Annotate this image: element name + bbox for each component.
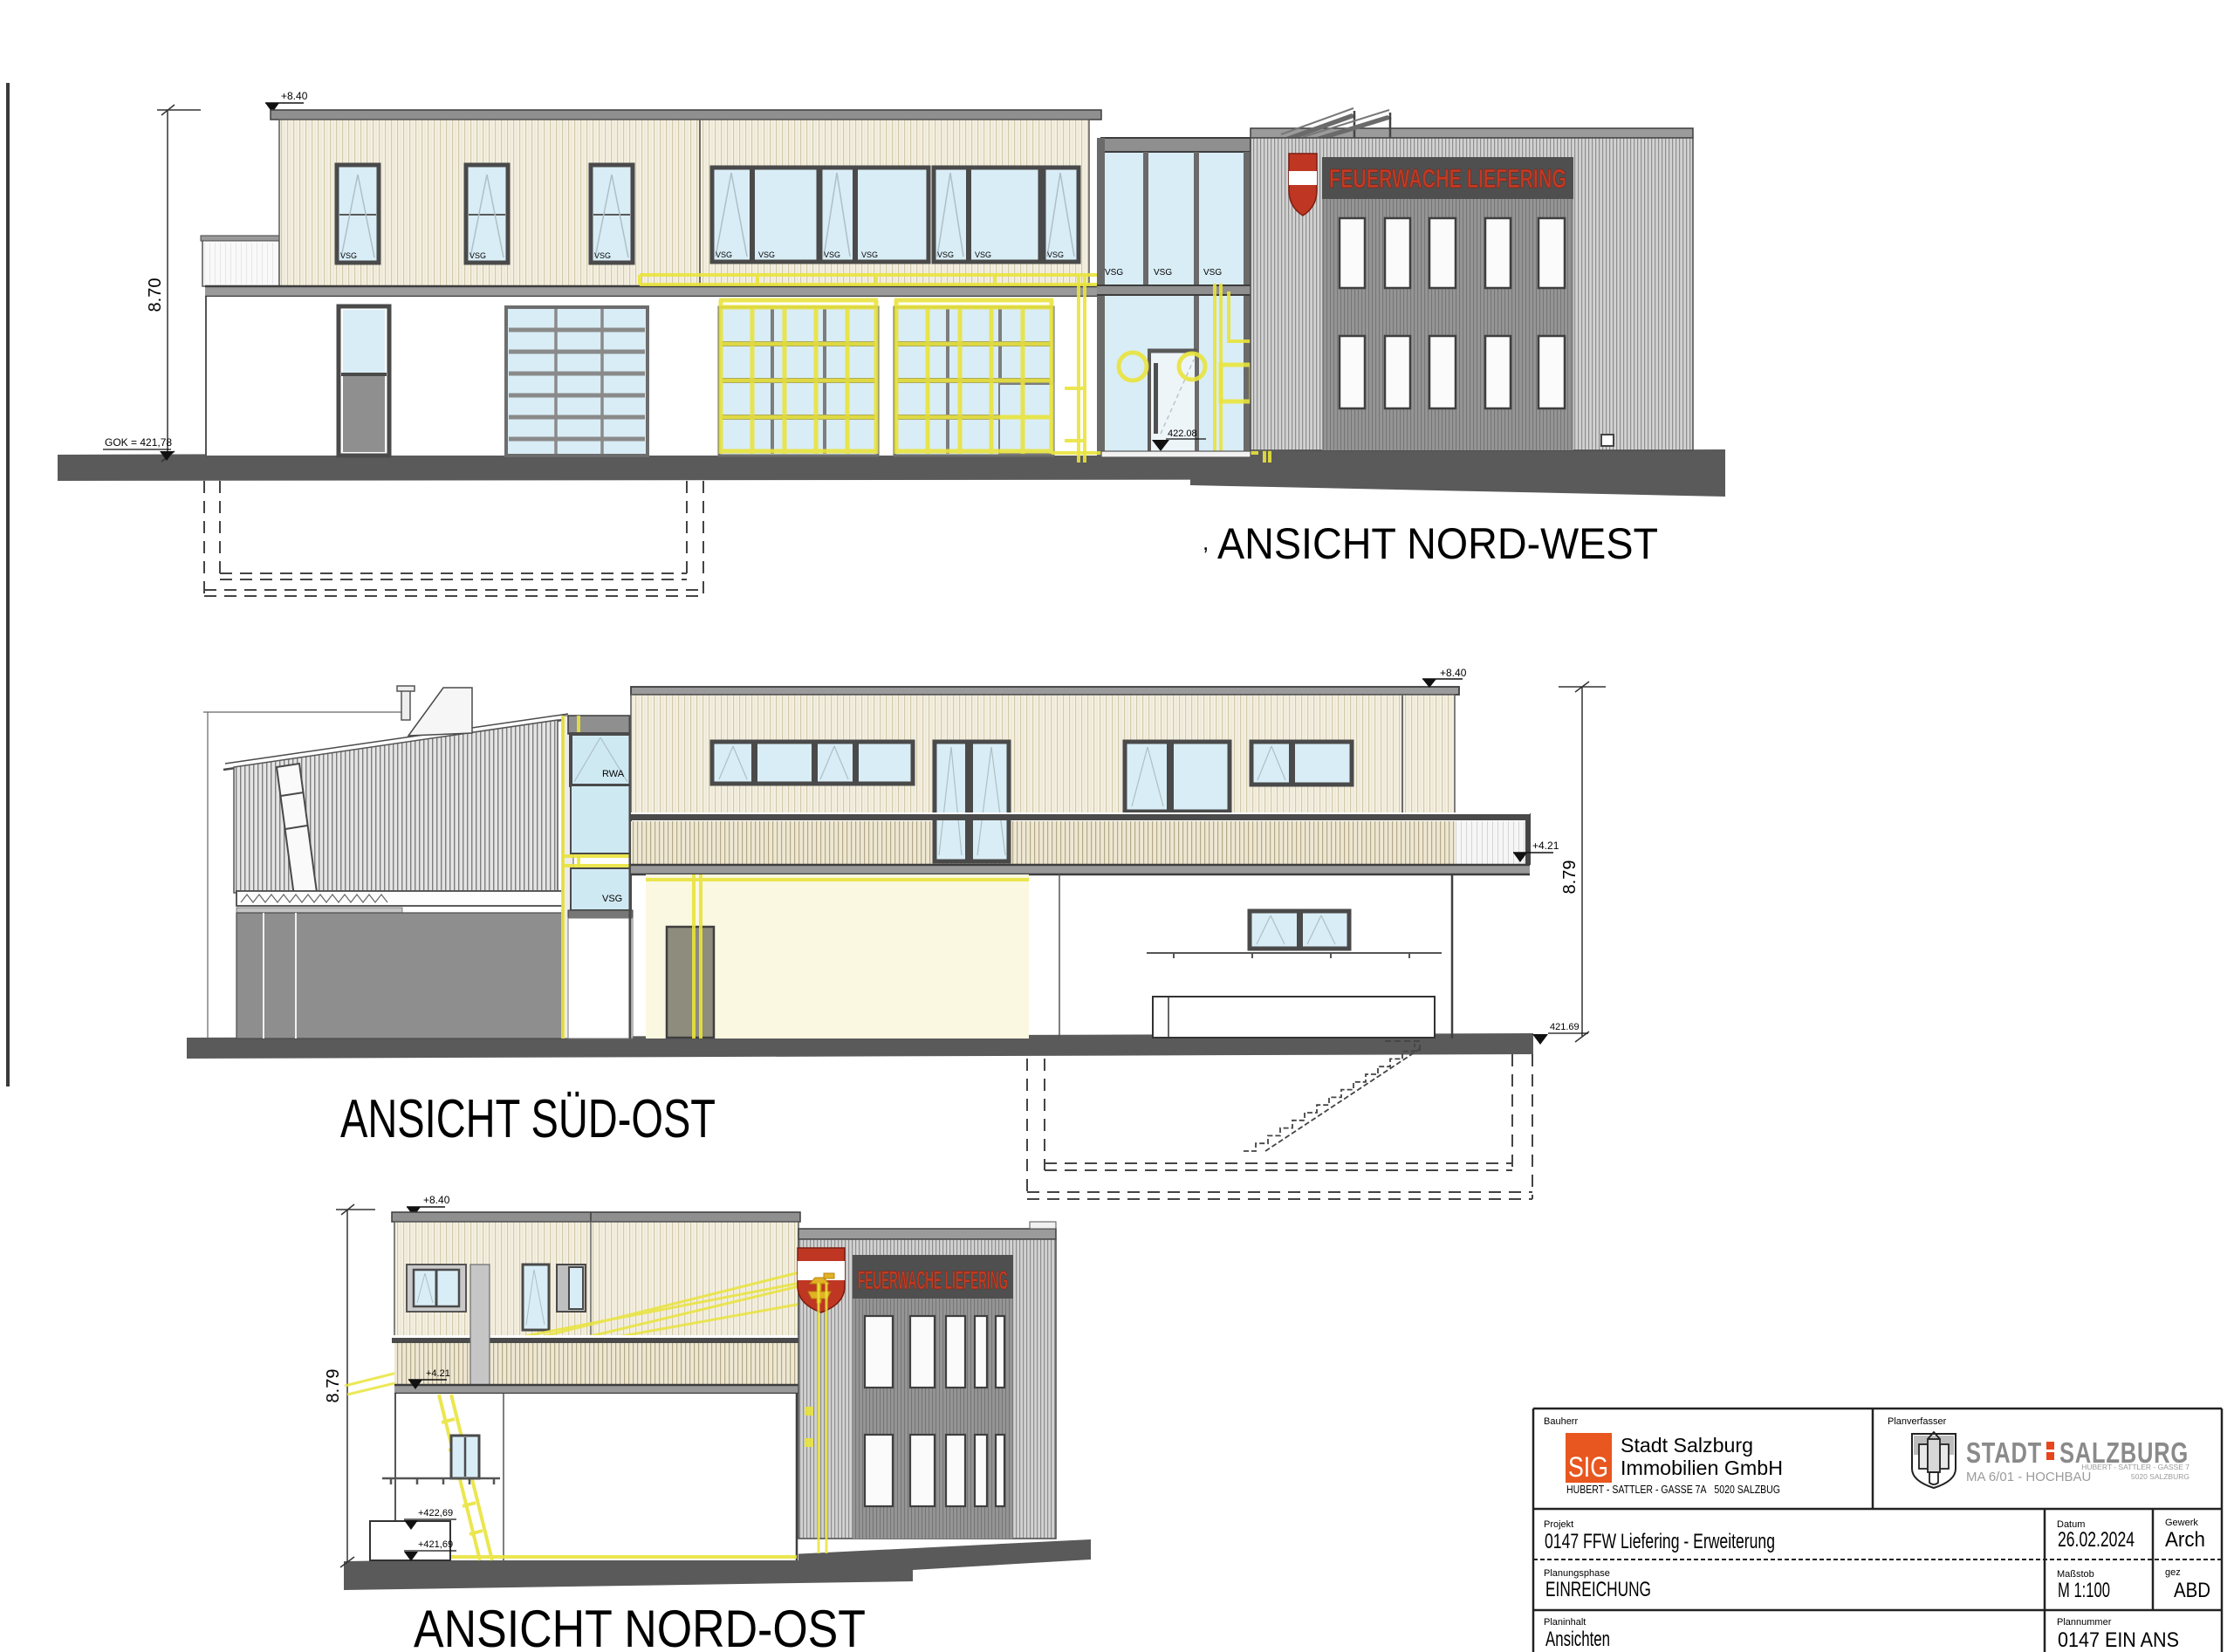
svg-text:Planinhalt: Planinhalt: [1544, 1617, 1586, 1628]
svg-text:Ansichten: Ansichten: [1545, 1628, 1610, 1651]
svg-text:VSG: VSG: [1105, 268, 1123, 278]
svg-text:Bauherr: Bauherr: [1544, 1416, 1578, 1427]
svg-text:Plannummer: Plannummer: [2057, 1617, 2112, 1628]
svg-text:HUBERT - SATTLER - GASSE 7A: HUBERT - SATTLER - GASSE 7A 5020 SALZBUG: [1566, 1483, 1780, 1496]
svg-text:VSG: VSG: [758, 250, 775, 259]
svg-text:Planverfasser: Planverfasser: [1888, 1416, 1947, 1427]
svg-text:ANSICHT NORD-OST: ANSICHT NORD-OST: [414, 1600, 866, 1652]
svg-text:ANSICHT SÜD-OST: ANSICHT SÜD-OST: [340, 1089, 716, 1149]
svg-text:8.70: 8.70: [146, 278, 165, 312]
svg-text:FEUERWACHE LIEFERING: FEUERWACHE LIEFERING: [858, 1266, 1008, 1295]
svg-text:VSG: VSG: [340, 251, 357, 260]
svg-text:VSG: VSG: [1203, 268, 1222, 278]
svg-text:+421,69: +421,69: [418, 1539, 453, 1550]
svg-text:GOK = 421,78: GOK = 421,78: [105, 436, 172, 449]
svg-text:ANSICHT NORD-WEST: ANSICHT NORD-WEST: [1217, 519, 1658, 568]
svg-text:ABD: ABD: [2174, 1579, 2210, 1602]
svg-text:0147 EIN ANS: 0147 EIN ANS: [2058, 1628, 2179, 1652]
svg-text:421.69: 421.69: [1550, 1022, 1580, 1032]
svg-text:Gewerk: Gewerk: [2165, 1518, 2198, 1528]
svg-text:VSG: VSG: [937, 250, 954, 259]
svg-text:8.79: 8.79: [1560, 860, 1580, 895]
svg-text:SIG: SIG: [1568, 1451, 1608, 1483]
svg-text:Arch: Arch: [2165, 1528, 2205, 1552]
svg-text:+8.40: +8.40: [1440, 667, 1467, 679]
svg-text:+8.40: +8.40: [281, 90, 308, 102]
svg-text:VSG: VSG: [594, 251, 611, 260]
svg-text:Stadt Salzburg: Stadt Salzburg: [1621, 1434, 1753, 1457]
svg-text:RWA: RWA: [602, 769, 625, 779]
svg-text:Immobilien GmbH: Immobilien GmbH: [1621, 1457, 1783, 1479]
svg-text:8.79: 8.79: [324, 1369, 343, 1403]
svg-text:M 1:100: M 1:100: [2058, 1579, 2110, 1602]
svg-text:HUBERT - SATTLER - GASSE 7: HUBERT - SATTLER - GASSE 7: [2081, 1463, 2189, 1471]
svg-text:+4.21: +4.21: [1532, 840, 1559, 852]
svg-text:5020 SALZBURG: 5020 SALZBURG: [2131, 1472, 2189, 1481]
svg-text:VSG: VSG: [1047, 250, 1064, 259]
svg-text:+4.21: +4.21: [426, 1368, 450, 1379]
svg-text:EINREICHUNG: EINREICHUNG: [1545, 1578, 1651, 1601]
svg-text:VSG: VSG: [602, 894, 622, 904]
svg-text:422.08: 422.08: [1168, 428, 1197, 439]
svg-text:VSG: VSG: [716, 250, 732, 259]
svg-text:+422,69: +422,69: [418, 1508, 453, 1518]
svg-text:0147 FFW Liefering - Erweiteru: 0147 FFW Liefering - Erweiterung: [1545, 1530, 1775, 1553]
svg-text:Projekt: Projekt: [1544, 1519, 1573, 1530]
svg-text:,: ,: [1203, 529, 1209, 555]
svg-text:VSG: VSG: [861, 250, 878, 259]
svg-text:VSG: VSG: [469, 251, 486, 260]
svg-text:+8.40: +8.40: [423, 1194, 450, 1206]
svg-text:MA 6/01 - HOCHBAU: MA 6/01 - HOCHBAU: [1966, 1470, 2091, 1484]
svg-text:gez: gez: [2165, 1567, 2181, 1578]
svg-text:VSG: VSG: [824, 250, 840, 259]
svg-text:VSG: VSG: [975, 250, 991, 259]
svg-text:26.02.2024: 26.02.2024: [2058, 1528, 2135, 1552]
svg-text:VSG: VSG: [1154, 268, 1172, 278]
svg-text:STADT: STADT: [1966, 1436, 2042, 1469]
svg-text:FEUERWACHE LIEFERING: FEUERWACHE LIEFERING: [1329, 163, 1566, 194]
